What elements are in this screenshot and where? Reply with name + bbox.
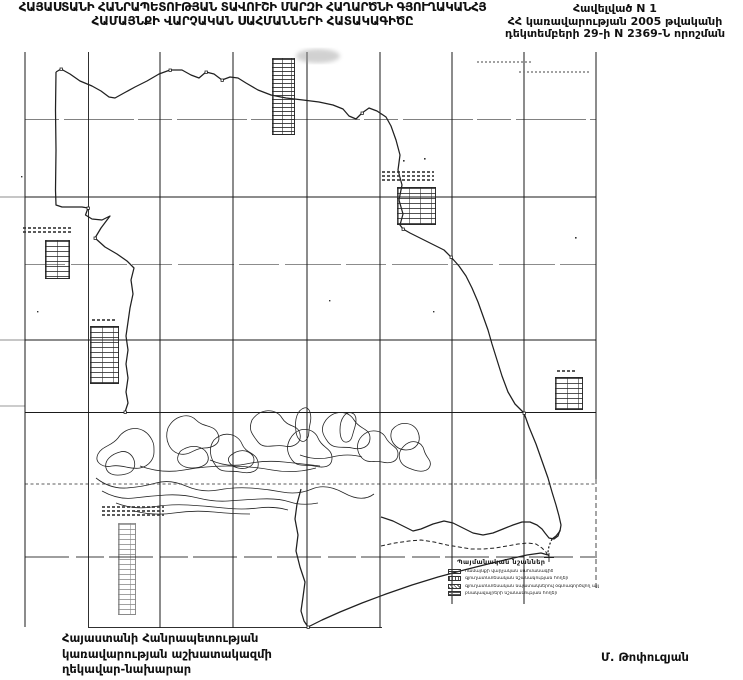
legend-item: գյուղատնտեսական նպատակներով օգտագործվող … xyxy=(448,584,600,589)
coordinate-table-6 xyxy=(118,523,136,615)
legend-item: համայնքի վարչական սահմանագիծ xyxy=(448,569,600,574)
stamp-smudge xyxy=(296,49,340,63)
scanned-map-page: ՀԱՅԱՍՏԱՆԻ ՀԱՆՐԱՊԵՏՈՒԹՅԱՆ ՏԱՎՈՒՇԻ ՄԱՐԶԻ Հ… xyxy=(0,0,743,680)
annex-line3: դեկտեմբերի 29-ի N 2369-Ն որոշման xyxy=(492,28,738,41)
faint-map-label-2 xyxy=(519,71,591,75)
boundary-line-swatch-icon xyxy=(448,569,461,574)
signature-name: Մ. Թոփուզյան xyxy=(601,650,689,666)
signatory-title-line3: ղեկավար-նախարար xyxy=(62,662,272,678)
coordinate-table-4-header xyxy=(92,319,116,323)
legend-item: բնակավայրերի նշանակության հողեր xyxy=(448,591,600,596)
coordinate-table-1 xyxy=(272,58,295,135)
coordinate-table-2-header xyxy=(382,171,434,183)
legend: Պայմանական նշաններ համայնքի վարչական սահ… xyxy=(448,558,600,596)
annex-note: Հավելված N 1 ՀՀ կառավարության 2005 թվակա… xyxy=(492,3,738,41)
legend-item-label: բնակավայրերի նշանակության հողեր xyxy=(465,591,557,596)
legend-item-label: գյուղատնտեսական նպատակներով օգտագործվող … xyxy=(465,584,600,589)
faint-map-label-1 xyxy=(477,61,533,65)
coordinate-table-3-header xyxy=(23,227,73,235)
legend-item-label: գյուղատնտեսական նշանակության հողեր xyxy=(465,576,568,581)
coordinate-table-5-header xyxy=(557,370,577,374)
diagonal-hatch-swatch-icon xyxy=(448,584,461,589)
coordinate-table-4 xyxy=(90,326,119,384)
map-title: ՀԱՅԱՍՏԱՆԻ ՀԱՆՐԱՊԵՏՈՒԹՅԱՆ ՏԱՎՈՒՇԻ ՄԱՐԶԻ Հ… xyxy=(0,0,505,28)
legend-title: Պայմանական նշաններ xyxy=(457,558,600,566)
signatory-title-line2: կառավարության աշխատակազմի xyxy=(62,647,272,663)
legend-item-label: համայնքի վարչական սահմանագիծ xyxy=(465,569,553,574)
coordinate-table-6-header xyxy=(102,506,164,518)
map-title-line1: ՀԱՅԱՍՏԱՆԻ ՀԱՆՐԱՊԵՏՈՒԹՅԱՆ ՏԱՎՈՒՇԻ ՄԱՐԶԻ Հ… xyxy=(0,0,505,14)
coordinate-table-3 xyxy=(45,240,70,279)
coordinate-table-2 xyxy=(397,187,436,225)
legend-item: գյուղատնտեսական նշանակության հողեր xyxy=(448,576,600,581)
scan-specks xyxy=(21,158,577,312)
dotted-swatch-icon xyxy=(448,576,461,581)
signatory-title-line1: Հայաստանի Հանրապետության xyxy=(62,631,272,647)
vertical-hatch-swatch-icon xyxy=(448,591,461,596)
map-title-line2: ՀԱՄԱՅՆՔԻ ՎԱՐՉԱԿԱՆ ՍԱՀՄԱՆՆԵՐԻ ՀԱՏԱԿԱԳԻԾԸ xyxy=(0,14,505,28)
signatory-title: Հայաստանի Հանրապետության կառավարության ա… xyxy=(62,631,272,678)
coordinate-table-5 xyxy=(555,377,583,410)
annex-line1: Հավելված N 1 xyxy=(492,3,738,16)
